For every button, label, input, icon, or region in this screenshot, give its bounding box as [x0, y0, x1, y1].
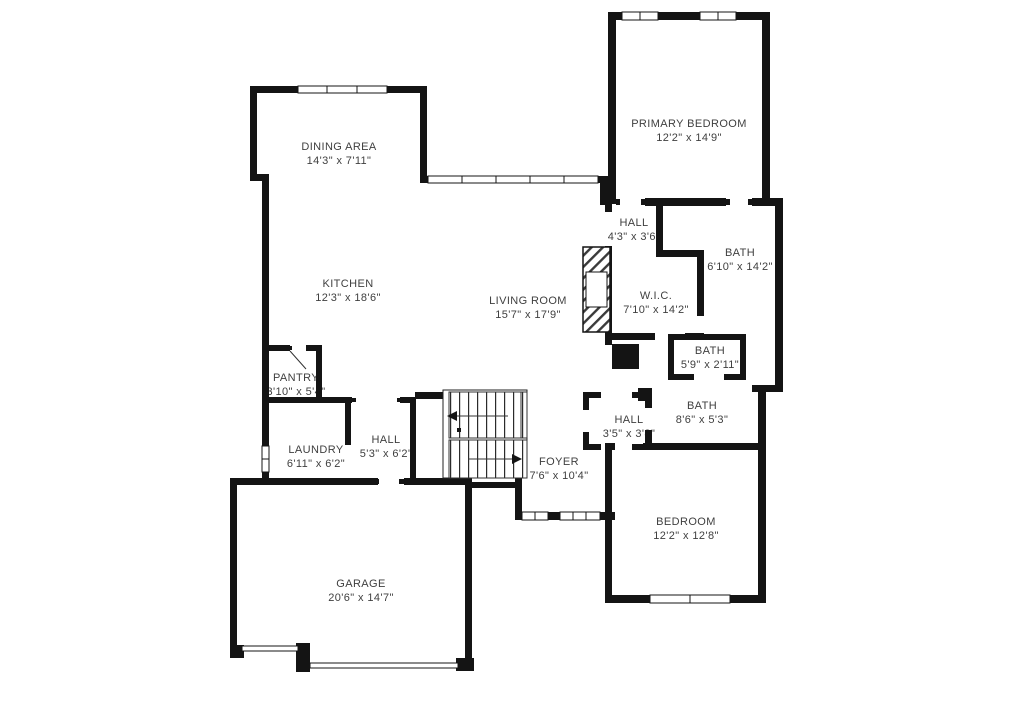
room-label-bath-small: BATH 5'9" x 2'11"	[681, 344, 739, 372]
room-label-wic: W.I.C. 7'10" x 14'2"	[623, 289, 689, 317]
room-dims: 4'3" x 3'6"	[608, 230, 661, 244]
room-name: GARAGE	[328, 577, 394, 591]
room-name: W.I.C.	[623, 289, 689, 303]
room-label-foyer: FOYER 7'6" x 10'4"	[529, 455, 588, 483]
room-name: DINING AREA	[301, 140, 376, 154]
room-name: BEDROOM	[653, 515, 719, 529]
room-name: LAUNDRY	[287, 443, 345, 457]
room-dims: 7'6" x 10'4"	[529, 469, 588, 483]
room-label-kitchen: KITCHEN 12'3" x 18'6"	[315, 277, 381, 305]
room-dims: 15'7" x 17'9"	[489, 308, 567, 322]
room-label-pantry: PANTRY 3'10" x 5'4"	[266, 371, 325, 399]
room-name: BATH	[676, 399, 729, 413]
room-label-garage: GARAGE 20'6" x 14'7"	[328, 577, 394, 605]
room-name: KITCHEN	[315, 277, 381, 291]
room-label-hall-laundry: HALL 5'3" x 6'2"	[360, 433, 413, 461]
room-name: PRIMARY BEDROOM	[631, 117, 747, 131]
room-label-living-room: LIVING ROOM 15'7" x 17'9"	[489, 294, 567, 322]
room-dims: 3'5" x 3'8"	[603, 427, 656, 441]
room-dims: 12'2" x 12'8"	[653, 529, 719, 543]
room-dims: 8'6" x 5'3"	[676, 413, 729, 427]
room-label-laundry: LAUNDRY 6'11" x 6'2"	[287, 443, 345, 471]
room-label-bedroom: BEDROOM 12'2" x 12'8"	[653, 515, 719, 543]
room-dims: 3'10" x 5'4"	[266, 385, 325, 399]
room-name: LIVING ROOM	[489, 294, 567, 308]
room-dims: 6'10" x 14'2"	[707, 260, 773, 274]
room-name: BATH	[681, 344, 739, 358]
room-label-dining-area: DINING AREA 14'3" x 7'11"	[301, 140, 376, 168]
room-name: HALL	[360, 433, 413, 447]
room-dims: 14'3" x 7'11"	[301, 154, 376, 168]
room-dims: 5'3" x 6'2"	[360, 447, 413, 461]
room-name: BATH	[707, 246, 773, 260]
room-name: HALL	[603, 413, 656, 427]
floor-plan: DINING AREA 14'3" x 7'11" KITCHEN 12'3" …	[0, 0, 1024, 716]
room-dims: 12'2" x 14'9"	[631, 131, 747, 145]
room-dims: 20'6" x 14'7"	[328, 591, 394, 605]
room-name: HALL	[608, 216, 661, 230]
room-label-hall-junction: HALL 3'5" x 3'8"	[603, 413, 656, 441]
room-label-hall-upper: HALL 4'3" x 3'6"	[608, 216, 661, 244]
room-dims: 5'9" x 2'11"	[681, 358, 739, 372]
room-labels: DINING AREA 14'3" x 7'11" KITCHEN 12'3" …	[0, 0, 1024, 716]
room-dims: 12'3" x 18'6"	[315, 291, 381, 305]
room-label-bath-primary: BATH 6'10" x 14'2"	[707, 246, 773, 274]
room-dims: 6'11" x 6'2"	[287, 457, 345, 471]
room-dims: 7'10" x 14'2"	[623, 303, 689, 317]
room-name: FOYER	[529, 455, 588, 469]
room-label-primary-bedroom: PRIMARY BEDROOM 12'2" x 14'9"	[631, 117, 747, 145]
room-label-bath-hall: BATH 8'6" x 5'3"	[676, 399, 729, 427]
room-name: PANTRY	[266, 371, 325, 385]
